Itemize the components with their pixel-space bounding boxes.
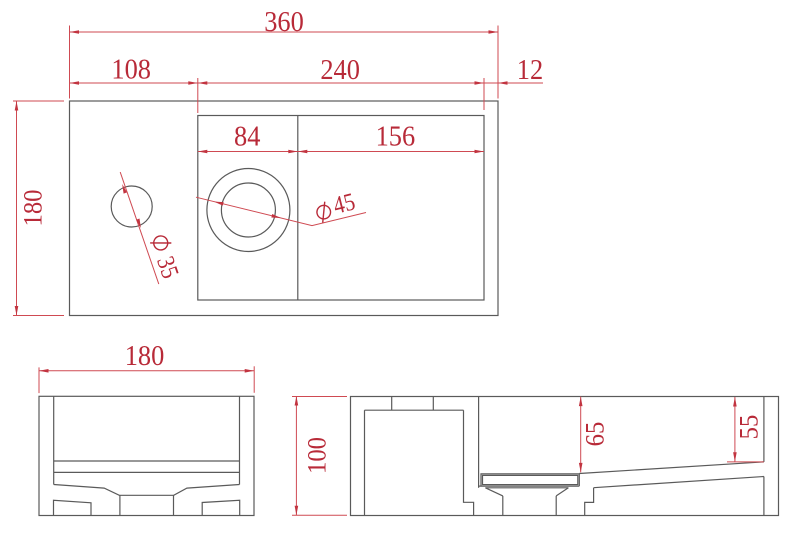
svg-text:55: 55 (735, 415, 764, 440)
svg-text:180: 180 (19, 189, 48, 226)
svg-text:156: 156 (376, 119, 416, 151)
svg-text:240: 240 (320, 53, 360, 85)
svg-text:108: 108 (111, 53, 151, 85)
svg-text:84: 84 (234, 119, 261, 151)
svg-text:100: 100 (303, 437, 332, 474)
svg-text:12: 12 (517, 53, 543, 85)
svg-text:65: 65 (581, 422, 610, 447)
svg-text:360: 360 (264, 5, 304, 37)
svg-text:180: 180 (125, 339, 165, 371)
